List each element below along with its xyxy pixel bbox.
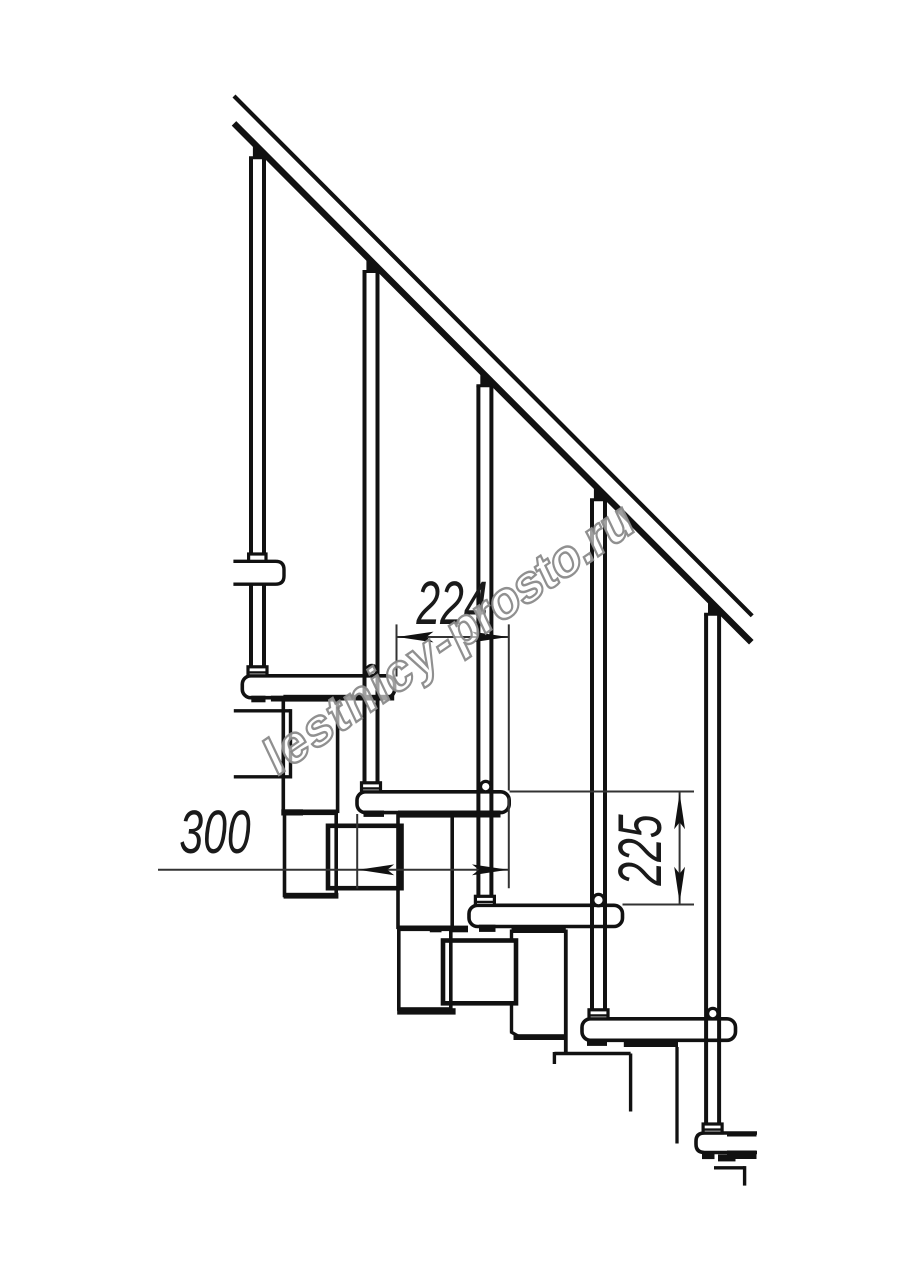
svg-text:300: 300 <box>179 799 250 867</box>
svg-text:225: 225 <box>607 814 675 887</box>
